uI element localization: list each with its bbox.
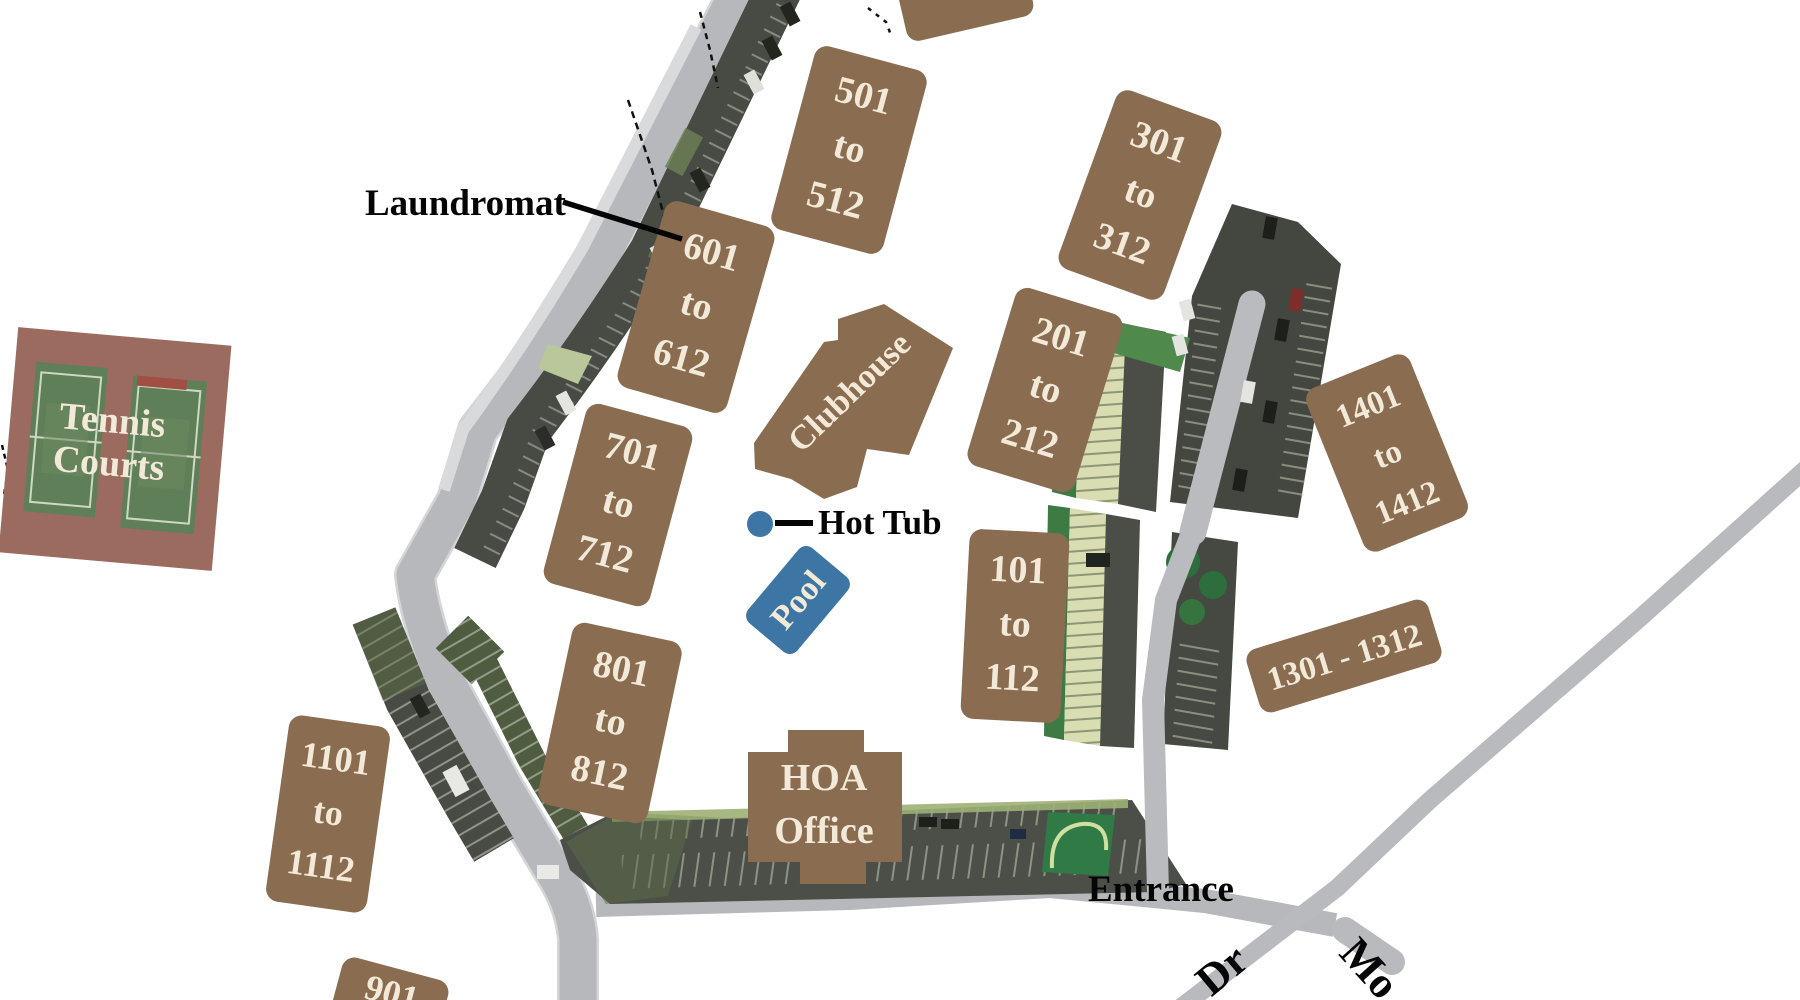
svg-text:Hot Tub: Hot Tub (818, 503, 942, 542)
svg-text:to: to (998, 602, 1032, 646)
svg-text:Laundromat: Laundromat (365, 183, 566, 224)
svg-text:112: 112 (984, 656, 1041, 701)
svg-text:Entrance: Entrance (1088, 869, 1234, 910)
svg-text:to: to (311, 790, 346, 834)
svg-text:101: 101 (988, 548, 1047, 593)
svg-text:Office: Office (774, 810, 873, 852)
svg-text:HOA: HOA (781, 757, 868, 799)
